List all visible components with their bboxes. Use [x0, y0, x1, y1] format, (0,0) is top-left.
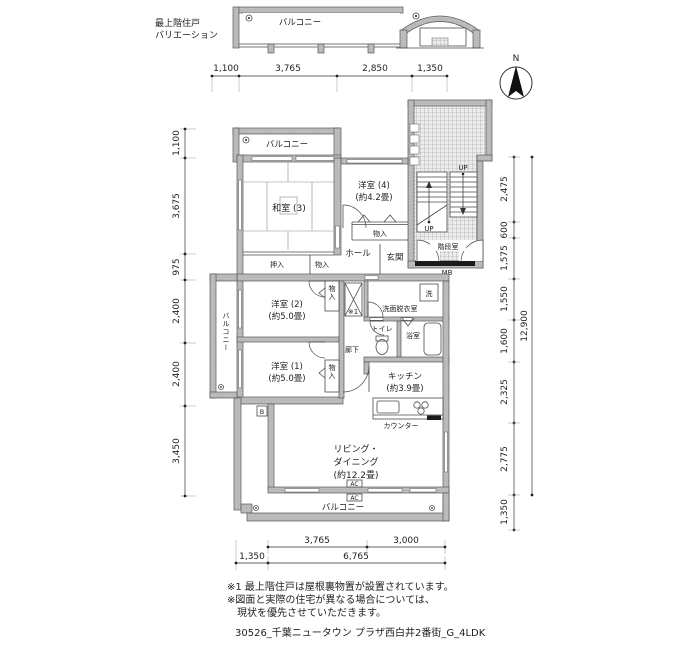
footer-id: 30526_千葉ニュータウン プラザ西白井2番街_G_4LDK — [235, 626, 486, 639]
dim-left-2: 3,675 — [172, 193, 182, 219]
dim-left-1: 1,100 — [172, 130, 182, 156]
stair-up-upper-label: UP — [458, 164, 467, 172]
dim-top-1: 1,100 — [213, 64, 239, 74]
monoiri-a-label: 物入 — [315, 260, 329, 269]
variation-label-line1: 最上階住戸 — [155, 17, 200, 29]
note-line2: ※図面と実際の住宅が異なる場合については、 — [227, 593, 435, 606]
living-dining: リビング・ ダイニング (約12.2畳) B AC — [257, 406, 379, 488]
dim-bottom-lower-1: 1,350 — [239, 552, 265, 562]
room-yoshitsu-2: 洋室 (2) (約5.0畳) 物入 — [268, 281, 339, 322]
dim-bottom-upper-1: 3,765 — [304, 536, 330, 546]
yoshitsu-1-name: 洋室 (1) — [271, 361, 303, 372]
dim-right-8: 1,350 — [500, 499, 510, 525]
kitchen-name: キッチン — [388, 372, 422, 382]
living-line3: (約12.2畳) — [333, 469, 378, 481]
dim-left-5: 2,400 — [172, 361, 182, 387]
oshiire-label: 押入 — [270, 260, 284, 269]
room-yoshitsu-4: 洋室 (4) (約4.2畳) 物入 — [343, 180, 408, 240]
dimension-top: 1,100 3,765 2,850 1,350 — [211, 64, 449, 92]
dim-right-6: 2,325 — [500, 379, 510, 405]
dim-right-5: 1,600 — [500, 328, 510, 354]
floor-plan-drawing: 最上階住戸 バリエーション バルコニー N — [0, 0, 700, 650]
variation-label-line2: バリエーション — [155, 30, 218, 41]
dimension-bottom: 3,765 3,000 1,350 6,765 — [235, 536, 447, 570]
room-washitsu-3: 和室 (3) — [243, 162, 334, 250]
dimension-right: 2,475 600 1,575 1,550 1,600 2,325 2,775 … — [500, 156, 533, 532]
dim-right-2: 600 — [500, 221, 510, 238]
pipe-shaft: ※1 — [345, 283, 362, 316]
stairwell: UP UP 階段室 MB — [408, 100, 492, 277]
dim-right-7: 2,775 — [500, 446, 510, 472]
compass-north-label: N — [513, 54, 520, 64]
bathroom: 浴室 — [402, 318, 441, 355]
variation-drawing: バルコニー — [233, 7, 484, 53]
floor-plan-page: 最上階住戸 バリエーション バルコニー N — [0, 0, 700, 650]
monoiri-hall-label: 物入 — [373, 229, 387, 238]
dim-right-1: 2,475 — [500, 176, 510, 202]
dim-right-total: 12,900 — [520, 310, 530, 342]
dim-top-2: 3,765 — [275, 64, 301, 74]
marker-b-label: B — [260, 408, 264, 416]
balcony-bottom-label: バルコニー — [322, 503, 364, 513]
balcony-left: バルコニー — [210, 274, 237, 398]
washitsu-3-label: 和室 (3) — [272, 202, 306, 214]
dim-right-4: 1,550 — [500, 286, 510, 312]
bath-label: 浴室 — [406, 331, 420, 340]
yoshitsu-4-name: 洋室 (4) — [358, 180, 390, 191]
shaft-note-label: ※1 — [348, 308, 358, 316]
monoiri-r1-label: 物入 — [328, 363, 336, 380]
yoshitsu-1-size: (約5.0畳) — [268, 373, 305, 384]
washroom-label: 洗面脱衣室 — [383, 304, 418, 313]
dim-bottom-upper-2: 3,000 — [393, 536, 419, 546]
note-line1: ※1 最上階住戸は屋根裏物置が設置されています。 — [227, 580, 454, 593]
compass: N — [500, 54, 532, 99]
stair-up-lower-label: UP — [424, 225, 433, 233]
living-line1: リビング・ — [333, 443, 378, 455]
dim-top-3: 2,850 — [362, 64, 388, 74]
living-line2: ダイニング — [333, 456, 378, 468]
corridor-label: 廊下 — [345, 345, 359, 354]
dim-right-3: 1,575 — [500, 245, 510, 271]
ac-1-label: AC — [350, 481, 358, 488]
stairwell-label: 階段室 — [438, 242, 459, 251]
note-line3: 現状を優先させていただきます。 — [237, 606, 386, 619]
dim-left-6: 3,450 — [172, 438, 182, 464]
hall-label: ホール — [345, 249, 371, 259]
kitchen: キッチン (約3.9畳) カウンター — [373, 372, 443, 430]
yoshitsu-4-size: (約4.2畳) — [355, 192, 392, 203]
balcony-left-label: バルコニー — [222, 312, 230, 352]
toilet-room: トイレ — [370, 321, 393, 355]
washer-label: 洗 — [426, 289, 433, 298]
dim-left-4: 2,400 — [172, 298, 182, 324]
room-yoshitsu-1: 洋室 (1) (約5.0畳) 物入 — [268, 342, 339, 392]
genkan-label: 玄関 — [386, 252, 403, 263]
counter-label: カウンター — [384, 421, 419, 430]
washroom: 洗 洗面脱衣室 — [368, 284, 438, 317]
dim-left-3: 975 — [172, 258, 182, 275]
meter-box — [415, 261, 475, 266]
notes: ※1 最上階住戸は屋根裏物置が設置されています。 ※図面と実際の住宅が異なる場合… — [227, 580, 486, 639]
hall-entrance: ホール 玄関 — [345, 244, 403, 274]
dim-top-4: 1,350 — [417, 64, 443, 74]
yoshitsu-2-size: (約5.0畳) — [268, 311, 305, 322]
monoiri-r2-label: 物入 — [328, 284, 336, 301]
balcony-top-label: バルコニー — [266, 140, 308, 150]
dim-bottom-lower-2: 6,765 — [343, 552, 369, 562]
yoshitsu-2-name: 洋室 (2) — [271, 299, 303, 310]
dimension-left: 1,100 3,675 975 2,400 2,400 3,450 — [172, 128, 196, 498]
kitchen-size: (約3.9畳) — [386, 383, 423, 394]
variation-label: 最上階住戸 バリエーション — [155, 17, 218, 41]
closet-row: 押入 物入 — [243, 252, 334, 274]
grill-icon — [427, 416, 441, 421]
variation-balcony-label: バルコニー — [279, 18, 321, 28]
ac-2-label: AC — [350, 495, 358, 502]
